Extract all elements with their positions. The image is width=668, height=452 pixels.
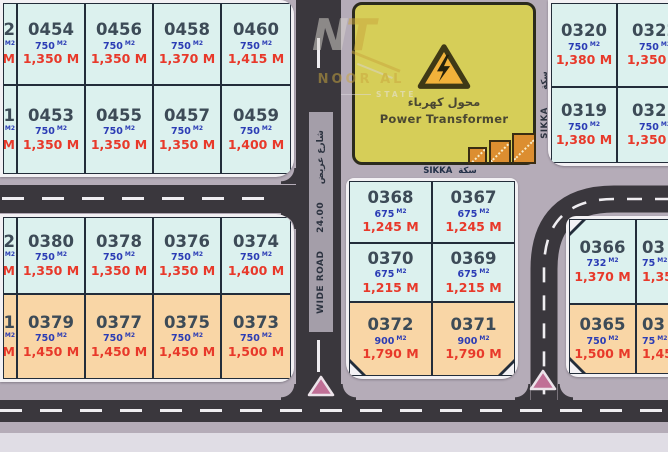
plot-price: 1,215 M [445, 282, 501, 295]
plot-area: M2 [3, 252, 15, 263]
lane-dashes [0, 409, 668, 412]
plot-area: M2 [3, 333, 15, 344]
plot-number: 03 [642, 317, 665, 334]
plot-0377: 0377750M21,450 M [85, 294, 153, 379]
plot-number: 0371 [451, 317, 497, 334]
lane-dashes [2, 197, 282, 200]
plot-area: 750M2 [103, 126, 135, 137]
transformer-label-arabic: محول كهرباء [408, 95, 481, 109]
plot-area: 750M2 [240, 41, 272, 52]
plot-number: 0455 [96, 108, 142, 125]
plot-price: 1,350 M [91, 265, 147, 278]
sikka-arabic: سكة [540, 71, 550, 89]
plot-price: 1,350 M [23, 139, 79, 152]
plot-0453: 0453750M21,350 M [17, 85, 85, 174]
sikka-arabic: سكة [458, 166, 476, 176]
plot-area: 750M2 [240, 252, 272, 263]
plot-area: 750M2 [568, 122, 600, 133]
plot-number: 2 [4, 234, 15, 251]
plot-area: 750M2 [240, 333, 272, 344]
plot-0368: 0368675M21,245 M [349, 181, 432, 243]
plot-area: 750M2 [587, 336, 619, 347]
plot-area: 750M2 [35, 333, 67, 344]
plot-area: 732M2 [587, 258, 619, 269]
plot-number: 0367 [451, 190, 497, 207]
plot-price: 1,35 [642, 271, 668, 284]
plot-number: 0319 [561, 103, 607, 120]
plot-area: 750M2 [35, 41, 67, 52]
plot-area: 750M2 [171, 126, 203, 137]
plot-price: 1,450 M [91, 346, 147, 359]
plot-1: 1M2M [3, 294, 17, 379]
high-voltage-warning-icon [416, 42, 472, 92]
plot-area: 750M2 [171, 252, 203, 263]
plot-area: 750M2 [103, 41, 135, 52]
road-fillet [281, 384, 296, 400]
plot-0373: 0373750M21,500 M [221, 294, 291, 379]
transformer-steps-icon [512, 133, 536, 164]
plot-number: 0373 [233, 315, 279, 332]
plot-area: M2 [3, 41, 15, 52]
plot-price: 1,350 M [23, 265, 79, 278]
plot-area: 750M2 [568, 42, 600, 53]
plot-number: 2 [4, 22, 15, 39]
plot-area: 75M2 [642, 258, 667, 269]
plot-area: 900M2 [375, 336, 407, 347]
plot-number: 0322 [632, 23, 668, 40]
lane-dash [317, 38, 320, 68]
road-fillet [341, 384, 356, 400]
plot-price: 1,790 M [445, 348, 501, 361]
plot-0319: 0319750M21,380 M [551, 87, 617, 163]
transformer-steps-icon [468, 147, 487, 164]
plot-0455: 0455750M21,350 M [85, 85, 153, 174]
plot-number: 0320 [561, 23, 607, 40]
wide-road-name-latin: WIDE ROAD [316, 251, 326, 314]
plot-0372: 0372900M21,790 M [349, 302, 432, 376]
plot-price: M [3, 53, 15, 66]
plot-area: 75M2 [642, 336, 667, 347]
plot-number: 0378 [96, 234, 142, 251]
plot-0375: 0375750M21,450 M [153, 294, 221, 379]
road-fillet [558, 384, 573, 400]
plot-price: M [3, 346, 15, 359]
plot-area: 675M2 [375, 209, 407, 220]
plot-number: 0459 [233, 108, 279, 125]
plot-area: 750M2 [103, 252, 135, 263]
plot-number: 0370 [368, 251, 414, 268]
plot-number: 0380 [28, 234, 74, 251]
plot-price: 1,790 M [362, 348, 418, 361]
lane-dash [317, 340, 320, 372]
plot-area: 750M2 [171, 333, 203, 344]
plot-0454: 0454750M21,350 M [17, 3, 85, 85]
plot-number: 0377 [96, 315, 142, 332]
plot-number: 0454 [28, 22, 74, 39]
plot-number: 0460 [233, 22, 279, 39]
plot-price: 1,450 M [159, 346, 215, 359]
plot-0376: 0376750M21,350 M [153, 217, 221, 294]
plot-2: 2M2M [3, 3, 17, 85]
plot-area: 750M2 [171, 41, 203, 52]
plot-price: 1,415 M [228, 53, 284, 66]
plot-number: 0365 [580, 317, 626, 334]
plot-0458: 0458750M21,370 M [153, 3, 221, 85]
plot-area: M2 [3, 126, 15, 137]
plot-price: 1,45 [642, 348, 668, 361]
plot-0321: 0321750M21,350 M [617, 87, 668, 163]
plot-price: 1,400 M [228, 265, 284, 278]
plot-area: 900M2 [458, 336, 490, 347]
entrance-marker-icon [306, 374, 336, 398]
plot-area: 675M2 [375, 269, 407, 280]
plot-number: 0457 [164, 108, 210, 125]
plot-area: 675M2 [458, 209, 490, 220]
plot-number: 0376 [164, 234, 210, 251]
plot-price: 1,400 M [228, 139, 284, 152]
plot-area: 750M2 [35, 126, 67, 137]
plot-price: 1,350 M [627, 134, 668, 147]
plot-price: 1,215 M [362, 282, 418, 295]
plot-area: 750M2 [639, 42, 668, 53]
transformer-label-english: Power Transformer [380, 112, 509, 126]
plot-0460: 0460750M21,415 M [221, 3, 291, 85]
plot-03: 0375M21,45 [636, 304, 668, 374]
wide-road-median: WIDE ROAD 24.00 شارع عريض [309, 112, 333, 332]
plot-number: 0375 [164, 315, 210, 332]
plot-0457: 0457750M21,350 M [153, 85, 221, 174]
plot-number: 0379 [28, 315, 74, 332]
plot-map-canvas: WIDE ROAD 24.00 شارع عريض 2M2M0454750M21… [0, 0, 668, 452]
plot-0380: 0380750M21,350 M [17, 217, 85, 294]
plot-price: 1,245 M [445, 221, 501, 234]
plot-number: 0374 [233, 234, 279, 251]
sikka-label-vertical: SIKKA سكة [534, 44, 556, 166]
plot-price: 1,350 M [91, 139, 147, 152]
plot-area: 750M2 [35, 252, 67, 263]
bottom-edge-strip [0, 433, 668, 452]
plot-0322: 0322750M21,350 M [617, 3, 668, 87]
plot-price: 1,350 M [159, 265, 215, 278]
transformer-steps-icon [489, 140, 511, 164]
wide-road-name-arabic: شارع عريض [316, 130, 326, 184]
plot-0365: 0365750M21,500 M [569, 304, 636, 374]
plot-price: M [3, 265, 15, 278]
plot-price: 1,500 M [228, 346, 284, 359]
plot-price: 1,380 M [556, 134, 612, 147]
plot-0366: 0366732M21,370 M [569, 219, 636, 304]
plot-2: 2M2M [3, 217, 17, 294]
plot-price: 1,350 M [159, 139, 215, 152]
plot-number: 0372 [368, 317, 414, 334]
plot-0456: 0456750M21,350 M [85, 3, 153, 85]
plot-number: 1 [4, 315, 15, 332]
plot-area: 750M2 [240, 126, 272, 137]
plot-price: 1,450 M [23, 346, 79, 359]
block-center: 0368675M21,245 M0367675M21,245 M0370675M… [346, 178, 518, 379]
plot-price: 1,370 M [159, 53, 215, 66]
block-right: 0366732M21,370 M0375M21,350365750M21,500… [566, 216, 668, 377]
plot-area: 675M2 [458, 269, 490, 280]
sikka-latin: SIKKA [423, 166, 452, 176]
plot-price: 1,370 M [574, 271, 630, 284]
plot-price: 1,500 M [574, 348, 630, 361]
wide-road-width: 24.00 [316, 202, 326, 233]
plot-price: 1,350 M [23, 53, 79, 66]
plot-area: 750M2 [639, 122, 668, 133]
plot-number: 0369 [451, 251, 497, 268]
plot-0370: 0370675M21,215 M [349, 243, 432, 302]
entrance-marker-icon [528, 368, 558, 392]
block-top-left: 2M2M0454750M21,350 M0456750M21,350 M0458… [0, 0, 294, 177]
sikka-label-horizontal: SIKKA سكة [395, 165, 505, 177]
plot-0374: 0374750M21,400 M [221, 217, 291, 294]
block-top-right: 0320750M21,380 M0322750M21,350 M0319750M… [548, 0, 668, 166]
plot-0371: 0371900M21,790 M [432, 302, 515, 376]
plot-price: 1,350 M [91, 53, 147, 66]
plot-0379: 0379750M21,450 M [17, 294, 85, 379]
plot-price: M [3, 139, 15, 152]
plot-1: 1M2M [3, 85, 17, 174]
plot-number: 0321 [632, 103, 668, 120]
plot-0367: 0367675M21,245 M [432, 181, 515, 243]
plot-price: 1,350 M [627, 54, 668, 67]
block-mid-left: 2M2M0380750M21,350 M0378750M21,350 M0376… [0, 214, 294, 382]
plot-number: 0456 [96, 22, 142, 39]
plot-0369: 0369675M21,215 M [432, 243, 515, 302]
plot-0378: 0378750M21,350 M [85, 217, 153, 294]
plot-number: 0453 [28, 108, 74, 125]
plot-number: 0366 [580, 240, 626, 257]
plot-price: 1,380 M [556, 54, 612, 67]
plot-number: 1 [4, 108, 15, 125]
plot-number: 03 [642, 240, 665, 257]
plot-price: 1,245 M [362, 221, 418, 234]
plot-number: 0368 [368, 190, 414, 207]
sikka-latin: SIKKA [540, 107, 550, 139]
plot-03: 0375M21,35 [636, 219, 668, 304]
plot-0320: 0320750M21,380 M [551, 3, 617, 87]
plot-number: 0458 [164, 22, 210, 39]
plot-0459: 0459750M21,400 M [221, 85, 291, 174]
plot-area: 750M2 [103, 333, 135, 344]
wide-road-label: WIDE ROAD 24.00 شارع عريض [316, 123, 326, 321]
